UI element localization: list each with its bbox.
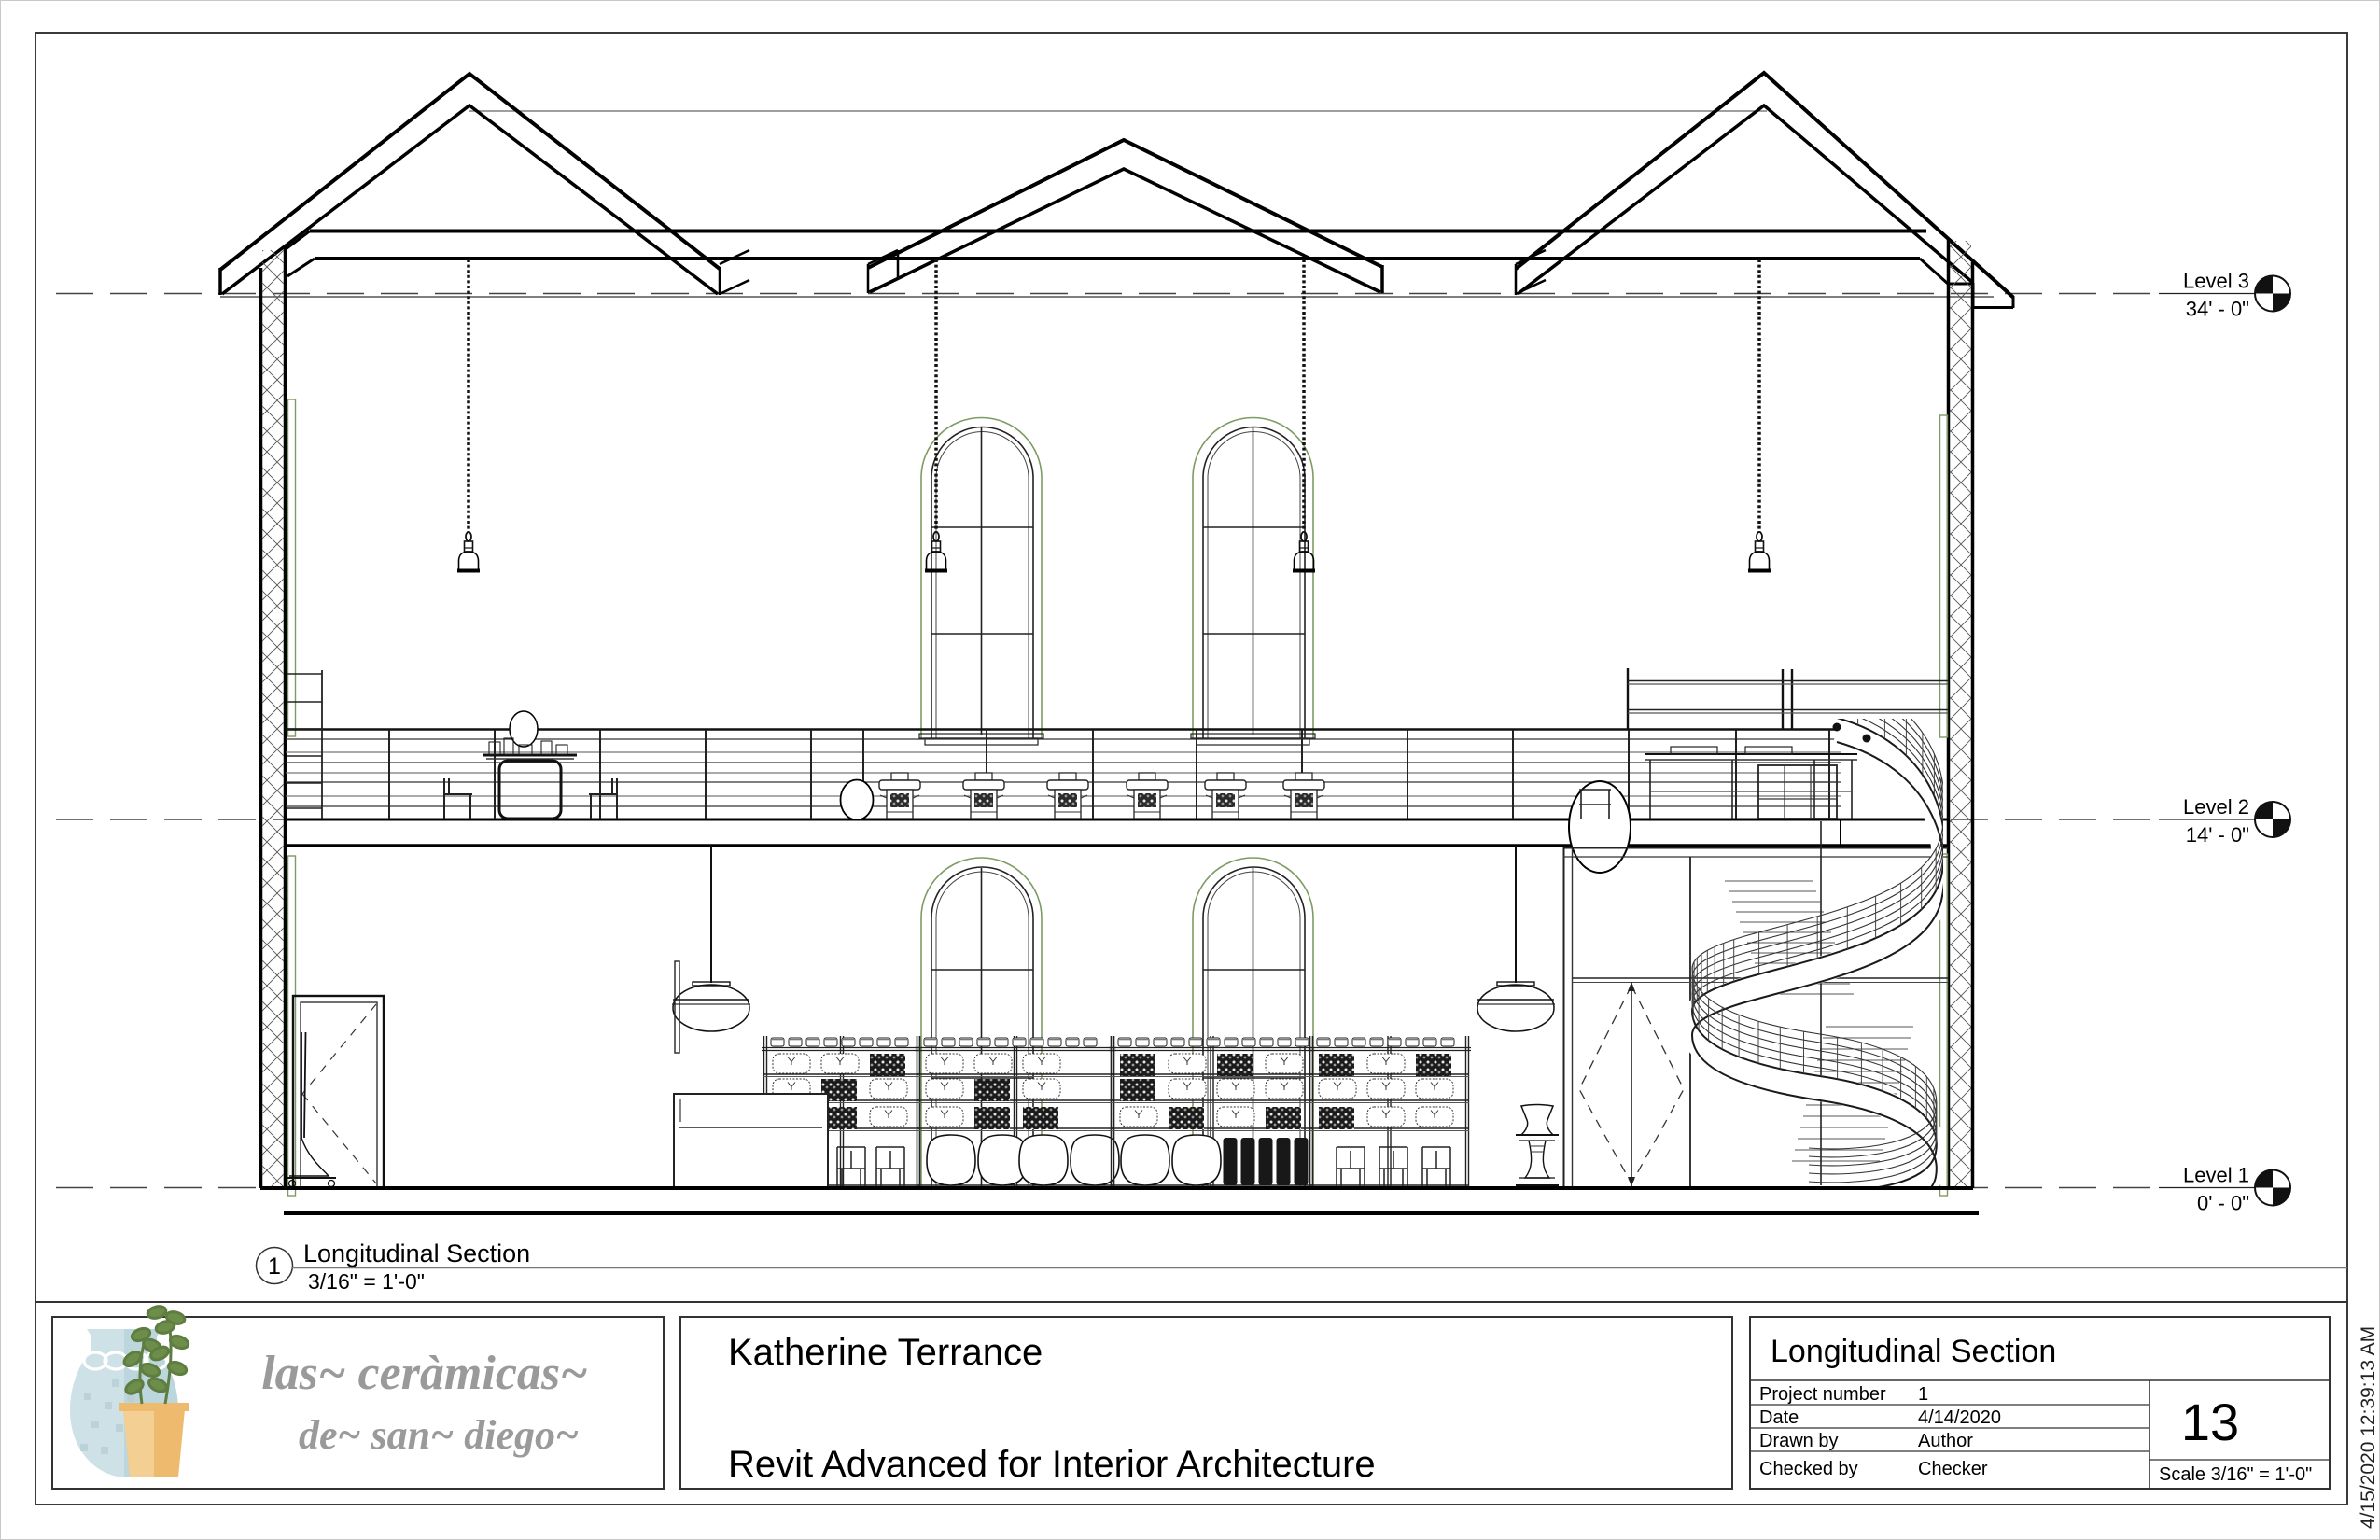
svg-text:Level 1: Level 1 xyxy=(2183,1164,2249,1187)
svg-text:Longitudinal Section: Longitudinal Section xyxy=(1771,1334,2056,1369)
svg-text:Drawn by: Drawn by xyxy=(1759,1431,1838,1451)
svg-text:de~ san~ diego~: de~ san~ diego~ xyxy=(299,1412,579,1458)
svg-text:Scale 3/16" = 1'-0": Scale 3/16" = 1'-0" xyxy=(2159,1464,2312,1485)
svg-text:13: 13 xyxy=(2181,1393,2239,1451)
svg-text:Level 3: Level 3 xyxy=(2183,270,2249,293)
svg-text:Project number: Project number xyxy=(1759,1384,1886,1405)
svg-text:1: 1 xyxy=(268,1253,281,1280)
svg-text:4/14/2020: 4/14/2020 xyxy=(1918,1407,2001,1428)
svg-text:Longitudinal Section: Longitudinal Section xyxy=(303,1239,530,1267)
svg-text:las~ ceràmicas~: las~ ceràmicas~ xyxy=(261,1347,588,1400)
svg-text:3/16" = 1'-0": 3/16" = 1'-0" xyxy=(308,1269,425,1294)
svg-text:Level 2: Level 2 xyxy=(2183,795,2249,819)
svg-text:14' - 0": 14' - 0" xyxy=(2186,823,2249,847)
svg-text:1: 1 xyxy=(1918,1384,1928,1405)
svg-text:Date: Date xyxy=(1759,1407,1799,1428)
svg-text:Checked by: Checked by xyxy=(1759,1459,1858,1479)
svg-text:4/15/2020 12:39:13 AM: 4/15/2020 12:39:13 AM xyxy=(2358,1326,2379,1529)
svg-text:34' - 0": 34' - 0" xyxy=(2186,298,2249,321)
svg-text:Author: Author xyxy=(1918,1431,1973,1451)
svg-text:Revit Advanced for Interior Ar: Revit Advanced for Interior Architecture xyxy=(728,1444,1376,1485)
svg-text:Katherine Terrance: Katherine Terrance xyxy=(728,1332,1043,1373)
svg-text:0' - 0": 0' - 0" xyxy=(2197,1192,2249,1215)
svg-text:Checker: Checker xyxy=(1918,1459,1988,1479)
